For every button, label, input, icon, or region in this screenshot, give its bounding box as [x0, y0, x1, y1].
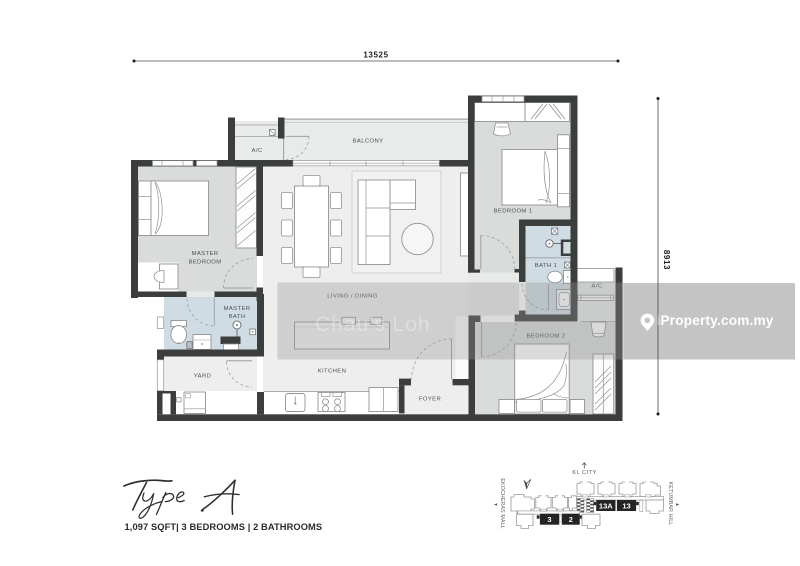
svg-text:KL CITY: KL CITY [572, 470, 596, 476]
svg-text:8913: 8913 [662, 250, 671, 270]
svg-text:BEDROOM 1: BEDROOM 1 [494, 209, 533, 215]
svg-text:13525: 13525 [363, 51, 388, 60]
svg-text:EKOCHERAS MALL: EKOCHERAS MALL [499, 478, 505, 528]
svg-text:FOYER: FOYER [419, 397, 441, 403]
svg-text:BATH: BATH [229, 314, 246, 320]
svg-text:13: 13 [622, 501, 630, 510]
svg-text:BEDROOM: BEDROOM [188, 260, 221, 266]
svg-text:3: 3 [547, 515, 551, 524]
svg-text:KITCHEN: KITCHEN [318, 369, 347, 375]
svg-text:A/C: A/C [252, 148, 263, 154]
svg-text:BALCONY: BALCONY [353, 139, 384, 145]
svg-text:KETUMBAR HILL: KETUMBAR HILL [667, 482, 673, 526]
svg-text:1,097 SQFT| 3 BEDROOMS | 2 BAT: 1,097 SQFT| 3 BEDROOMS | 2 BATHROOMS [125, 522, 323, 532]
svg-text:Chau's Loh: Chau's Loh [315, 313, 431, 336]
svg-text:BATH 1: BATH 1 [535, 263, 557, 269]
svg-text:13A: 13A [599, 501, 613, 510]
svg-text:MASTER: MASTER [224, 306, 251, 312]
svg-text:MASTER: MASTER [192, 251, 219, 257]
svg-text:YARD: YARD [194, 374, 211, 380]
svg-text:iProperty.com.my: iProperty.com.my [657, 313, 774, 328]
svg-text:2: 2 [569, 515, 573, 524]
